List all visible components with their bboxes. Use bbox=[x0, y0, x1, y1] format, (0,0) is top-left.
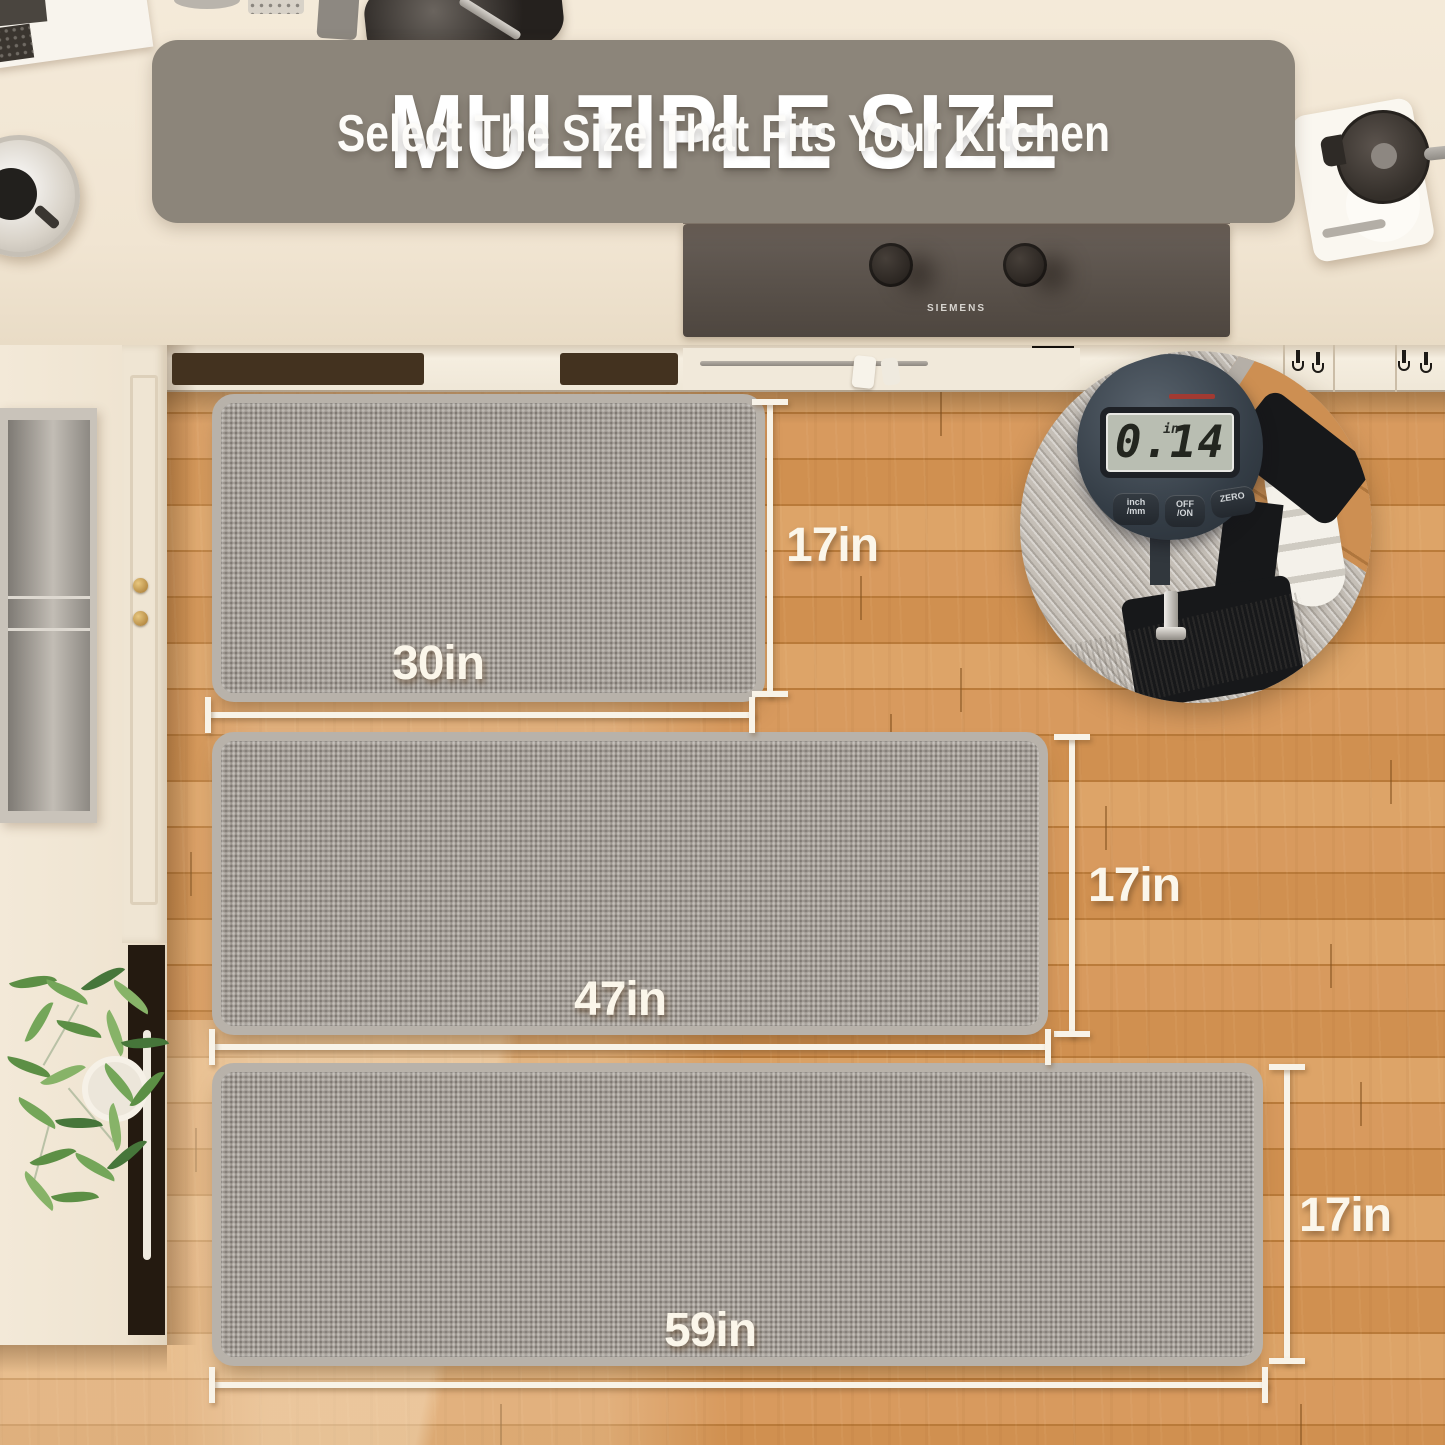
dimension-cap bbox=[205, 697, 211, 733]
mat3-width-label: 59in bbox=[664, 1303, 756, 1358]
cabinet-recess bbox=[560, 353, 678, 385]
appliance-divider bbox=[8, 628, 90, 631]
dimension-cap bbox=[749, 697, 755, 733]
island-bottom-shadow bbox=[0, 1345, 167, 1373]
cabinet-recess bbox=[172, 353, 424, 385]
cooktop-panel bbox=[683, 224, 1230, 337]
thickness-inset-circle: 0.14 in inch /mm OFF /ON ZERO bbox=[1020, 351, 1372, 703]
wood-seam bbox=[1330, 944, 1332, 988]
dimension-cap bbox=[752, 691, 788, 697]
cabinet-knob bbox=[133, 578, 148, 593]
inch-mm-button: inch /mm bbox=[1113, 493, 1159, 525]
cabinet-panel bbox=[130, 375, 158, 905]
vented-gadget bbox=[0, 24, 34, 63]
dotted-trivet bbox=[248, 0, 304, 14]
mat-30x17 bbox=[212, 394, 765, 702]
stainless-panel bbox=[8, 420, 90, 811]
mat3-height-label: 17in bbox=[1299, 1188, 1391, 1243]
button-label: /mm bbox=[1113, 507, 1159, 516]
header-banner: MULTIPLE SIZE Select The Size That Fits … bbox=[152, 40, 1295, 223]
dimension-line-horizontal bbox=[212, 1382, 1268, 1388]
cabinet-knob bbox=[133, 611, 148, 626]
mat2-width-label: 47in bbox=[574, 972, 666, 1027]
dimension-cap bbox=[209, 1367, 215, 1403]
wood-seam bbox=[1300, 1404, 1302, 1445]
coffee-maker-knob bbox=[1371, 143, 1397, 169]
wood-seam bbox=[1390, 760, 1392, 804]
kettle-handle bbox=[33, 204, 60, 230]
dimension-cap bbox=[752, 399, 788, 405]
dimension-cap bbox=[1269, 1064, 1305, 1070]
dimension-cap bbox=[209, 1029, 215, 1065]
gauge-stem bbox=[1150, 537, 1170, 585]
dimension-line-vertical bbox=[1284, 1064, 1290, 1364]
dimension-cap bbox=[1054, 734, 1090, 740]
hanging-towel bbox=[880, 357, 901, 386]
dimension-cap bbox=[1269, 1358, 1305, 1364]
wood-seam bbox=[860, 576, 862, 620]
product-infographic: SIEMENS MULTIPLE SIZE Select The Size Th… bbox=[0, 0, 1445, 1445]
cabinet-door-seam bbox=[1395, 345, 1397, 392]
digital-gauge: 0.14 in inch /mm OFF /ON ZERO bbox=[1077, 354, 1263, 540]
dimension-cap bbox=[1054, 1031, 1090, 1037]
mat2-height-label: 17in bbox=[1088, 858, 1180, 913]
utensil-holder bbox=[316, 0, 359, 40]
dimension-line-horizontal bbox=[205, 712, 755, 718]
mat1-height-label: 17in bbox=[786, 518, 878, 573]
island-shadow bbox=[167, 345, 197, 1345]
thickness-unit: in bbox=[1163, 422, 1179, 437]
wood-seam bbox=[1105, 806, 1107, 850]
button-label: /ON bbox=[1165, 509, 1205, 518]
gauge-lcd: 0.14 in bbox=[1100, 407, 1240, 478]
hanging-towel bbox=[851, 355, 876, 389]
wood-seam bbox=[1360, 1082, 1362, 1126]
stove-brand-label: SIEMENS bbox=[683, 303, 1230, 314]
caliper-anvil bbox=[1156, 627, 1186, 640]
tall-cabinet bbox=[122, 345, 167, 943]
gauge-brand-mark bbox=[1169, 394, 1215, 399]
dimension-line-vertical bbox=[767, 399, 773, 697]
wood-seam bbox=[960, 668, 962, 712]
wall-hook bbox=[1402, 350, 1406, 363]
stove-knob bbox=[869, 243, 913, 287]
stove-knob bbox=[1003, 243, 1047, 287]
dimension-line-vertical bbox=[1069, 734, 1075, 1037]
mat1-width-label: 30in bbox=[392, 636, 484, 691]
wall-hook bbox=[1424, 352, 1428, 365]
kettle-lid bbox=[0, 168, 37, 220]
off-on-button: OFF /ON bbox=[1165, 495, 1205, 527]
appliance-divider bbox=[8, 596, 90, 599]
banner-subtitle: Select The Size That Fits Your Kitchen bbox=[337, 107, 1110, 162]
dimension-cap bbox=[1262, 1367, 1268, 1403]
stainless-appliance bbox=[0, 408, 97, 823]
button-label: ZERO bbox=[1210, 490, 1255, 506]
dimension-line-horizontal bbox=[212, 1044, 1048, 1050]
dimension-cap bbox=[1045, 1029, 1051, 1065]
